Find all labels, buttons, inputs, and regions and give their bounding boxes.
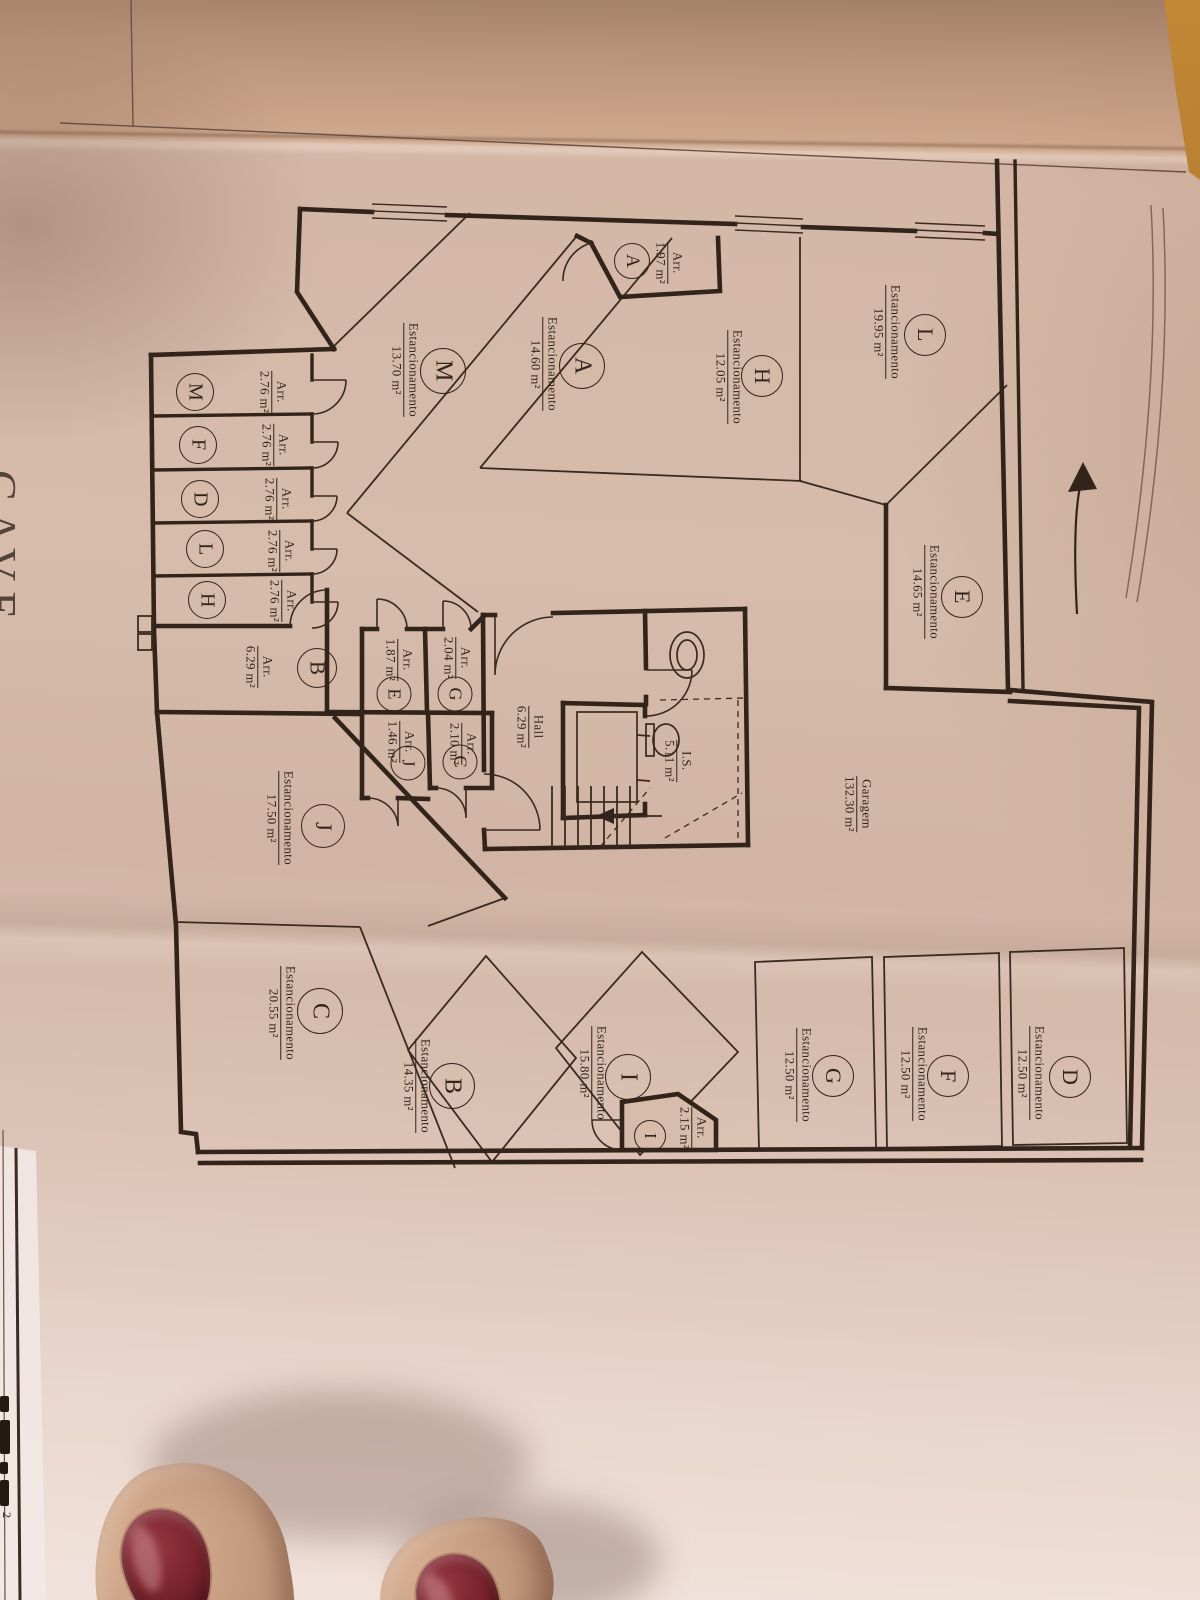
parking-B-label: Estancionamento14.35 m² bbox=[399, 1039, 432, 1133]
circle-parking-E: E bbox=[941, 576, 983, 618]
storage-L-label: Arr.2.76 m² bbox=[263, 530, 296, 572]
circle-parking-D: D bbox=[1049, 1056, 1091, 1098]
circle-parking-G: G bbox=[812, 1055, 854, 1097]
circle-storage-A: A bbox=[614, 243, 650, 279]
parking-F-label: Estancionamento12.50 m² bbox=[896, 1027, 929, 1121]
storage-D-label: Arr.2.76 m² bbox=[260, 478, 293, 520]
parking-H-label: Estancionamento12.05 m² bbox=[711, 330, 744, 424]
parking-G-label: Estancionamento12.50 m² bbox=[780, 1028, 813, 1122]
wc-label: I.S.5.11 m² bbox=[660, 740, 693, 782]
circle-parking-C: C bbox=[297, 988, 343, 1034]
circle-parking-I: I bbox=[605, 1054, 651, 1100]
storage-M-label: Arr.2.76 m² bbox=[255, 371, 288, 413]
clipped-text-fragment bbox=[0, 1480, 9, 1506]
storage-H-label: Arr.2.76 m² bbox=[265, 580, 298, 622]
circle-storage-L: L bbox=[186, 530, 224, 568]
circle-parking-F: F bbox=[927, 1055, 969, 1097]
hall-label: Hall6.29 m² bbox=[512, 706, 545, 748]
circle-storage-H: H bbox=[188, 581, 226, 619]
parking-M-label: Estancionamento13.70 m² bbox=[387, 323, 420, 417]
floor-plan-labels: Estancionamento19.95 m²Estancionamento12… bbox=[0, 0, 1200, 1600]
circle-storage-J: J bbox=[391, 746, 426, 781]
parking-D-label: Estancionamento12.50 m² bbox=[1013, 1026, 1046, 1120]
sheet-title: CAVE bbox=[0, 470, 27, 629]
circle-storage-G: G bbox=[438, 677, 473, 712]
circle-parking-M: M bbox=[420, 348, 466, 394]
parking-E-label: Estancionamento14.65 m² bbox=[908, 545, 941, 639]
parking-L-label: Estancionamento19.95 m² bbox=[869, 285, 902, 379]
circle-parking-H: H bbox=[741, 355, 783, 397]
circle-parking-B: B bbox=[429, 1063, 475, 1109]
garage-label: Garagem132.30 m² bbox=[840, 776, 873, 832]
storage-A-label: Arr.1.97 m² bbox=[651, 242, 684, 284]
circle-storage-M: M bbox=[176, 373, 214, 411]
circle-parking-L: L bbox=[904, 314, 946, 356]
circle-storage-D: D bbox=[181, 480, 219, 518]
photo-of-floor-plan: Estancionamento19.95 m²Estancionamento12… bbox=[0, 0, 1200, 1600]
clipped-text-fragment bbox=[0, 1420, 10, 1454]
circle-storage-I: I bbox=[634, 1120, 666, 1152]
clipped-page-number: 2 bbox=[0, 1512, 14, 1518]
clipped-text-fragment bbox=[0, 1462, 8, 1474]
circle-parking-A: A bbox=[559, 343, 605, 389]
clipped-text-fragment bbox=[0, 1396, 9, 1412]
storage-B-label: Arr.6.29 m² bbox=[241, 646, 274, 688]
circle-parking-J: J bbox=[301, 804, 345, 848]
storage-G-label: Arr.2.04 m² bbox=[439, 637, 472, 679]
parking-C-label: Estancionamento20.55 m² bbox=[264, 966, 297, 1060]
circle-storage-C: C bbox=[443, 745, 478, 780]
storage-F-label: Arr.2.76 m² bbox=[257, 424, 290, 466]
storage-I-label: Arr.2.15 m² bbox=[675, 1107, 708, 1149]
storage-E-label: Arr.1.87 m² bbox=[381, 639, 414, 681]
circle-storage-B: B bbox=[297, 648, 337, 688]
parking-I-label: Estancionamento15.80 m² bbox=[575, 1026, 608, 1120]
parking-A-label: Estancionamento14.60 m² bbox=[526, 317, 559, 411]
circle-storage-F: F bbox=[179, 426, 217, 464]
circle-storage-E: E bbox=[377, 677, 412, 712]
parking-J-label: Estancionamento17.50 m² bbox=[262, 771, 295, 865]
